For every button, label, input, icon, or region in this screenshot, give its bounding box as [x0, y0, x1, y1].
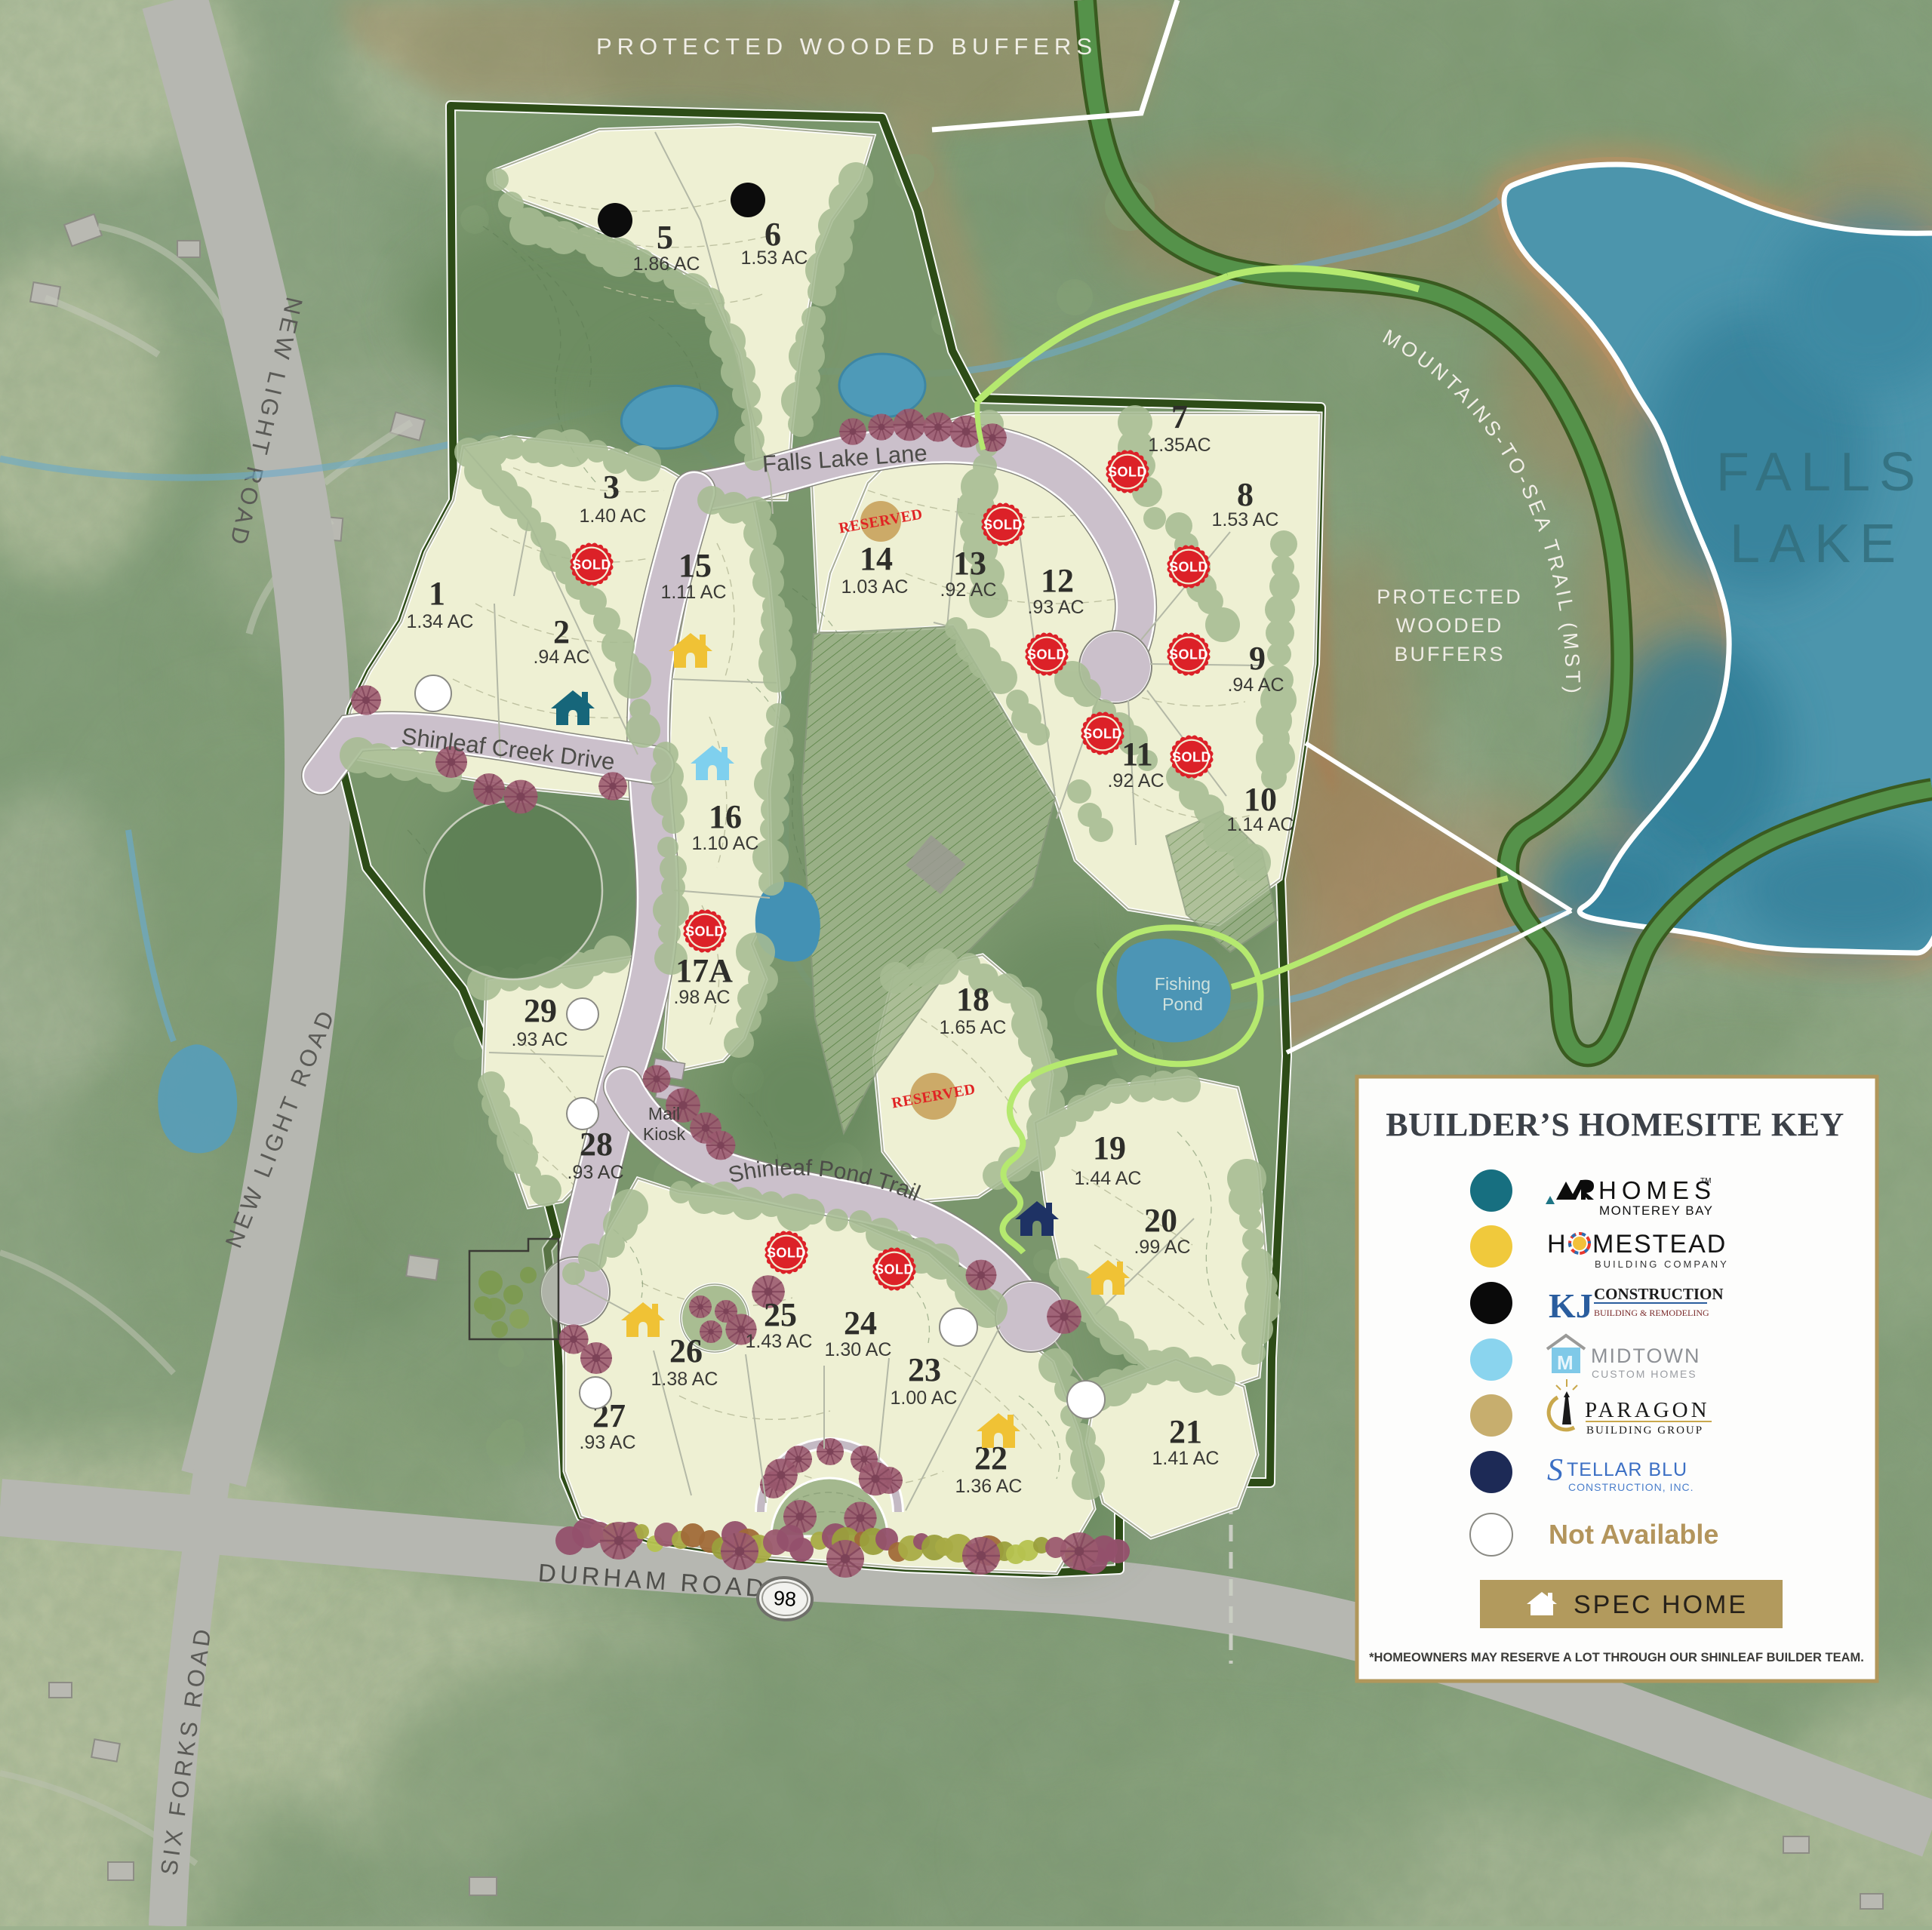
svg-text:PROTECTED WOODED BUFFERS: PROTECTED WOODED BUFFERS: [596, 33, 1097, 60]
svg-text:FALLS: FALLS: [1716, 442, 1924, 502]
svg-text:BUILDING & REMODELING: BUILDING & REMODELING: [1594, 1308, 1709, 1318]
svg-text:MESTEAD: MESTEAD: [1592, 1230, 1727, 1258]
svg-text:Fishing: Fishing: [1155, 974, 1211, 994]
svg-text:29: 29: [524, 992, 557, 1029]
svg-text:PARAGON: PARAGON: [1585, 1398, 1710, 1422]
svg-text:.93 AC: .93 AC: [511, 1029, 568, 1050]
svg-text:TM: TM: [1700, 1177, 1711, 1185]
svg-text:1.40 AC: 1.40 AC: [580, 506, 647, 527]
svg-text:.92 AC: .92 AC: [1107, 770, 1164, 791]
svg-text:1.41 AC: 1.41 AC: [1152, 1448, 1220, 1469]
svg-text:23: 23: [908, 1351, 941, 1388]
svg-text:H: H: [1547, 1230, 1567, 1258]
svg-text:1.14 AC: 1.14 AC: [1227, 814, 1294, 835]
svg-text:LAKE: LAKE: [1730, 514, 1905, 574]
svg-text:HOMES: HOMES: [1598, 1176, 1716, 1204]
svg-text:.99 AC: .99 AC: [1134, 1237, 1190, 1258]
svg-text:S: S: [1547, 1453, 1563, 1488]
svg-text:M: M: [1557, 1351, 1574, 1374]
svg-text:1.86 AC: 1.86 AC: [633, 254, 700, 275]
svg-text:8: 8: [1237, 476, 1254, 513]
svg-text:.93 AC: .93 AC: [1027, 597, 1084, 618]
svg-text:BUILDING COMPANY: BUILDING COMPANY: [1595, 1258, 1729, 1270]
svg-text:9: 9: [1249, 640, 1266, 677]
svg-text:12: 12: [1041, 562, 1074, 599]
svg-text:20: 20: [1144, 1202, 1177, 1239]
svg-text:18: 18: [956, 981, 989, 1018]
svg-text:25: 25: [764, 1296, 797, 1333]
svg-text:SPEC HOME: SPEC HOME: [1574, 1590, 1748, 1619]
svg-text:BUILDER’S HOMESITE KEY: BUILDER’S HOMESITE KEY: [1386, 1106, 1844, 1143]
svg-text:Pond: Pond: [1162, 994, 1203, 1014]
svg-text:1.53 AC: 1.53 AC: [741, 247, 808, 269]
svg-text:.93 AC: .93 AC: [567, 1162, 623, 1183]
svg-text:19: 19: [1093, 1129, 1126, 1166]
svg-text:PROTECTED: PROTECTED: [1377, 585, 1523, 608]
svg-text:1.43 AC: 1.43 AC: [746, 1331, 813, 1352]
svg-text:1.00 AC: 1.00 AC: [891, 1388, 958, 1409]
svg-text:10: 10: [1244, 781, 1277, 818]
svg-text:7: 7: [1171, 398, 1188, 435]
svg-text:MIDTOWN: MIDTOWN: [1591, 1345, 1700, 1367]
svg-text:1.10 AC: 1.10 AC: [692, 833, 759, 854]
svg-text:MONTEREY BAY: MONTEREY BAY: [1599, 1203, 1714, 1218]
svg-text:1.35AC: 1.35AC: [1148, 435, 1211, 456]
svg-text:.98 AC: .98 AC: [673, 987, 730, 1008]
svg-text:16: 16: [709, 798, 742, 835]
svg-text:1.03 AC: 1.03 AC: [841, 576, 909, 598]
svg-text:98: 98: [773, 1587, 797, 1611]
svg-text:14: 14: [860, 540, 893, 577]
svg-text:5: 5: [657, 219, 673, 256]
svg-text:.94 AC: .94 AC: [1227, 675, 1284, 696]
svg-text:17A: 17A: [675, 952, 733, 989]
svg-text:21: 21: [1169, 1413, 1202, 1450]
svg-text:TELLAR BLU: TELLAR BLU: [1567, 1459, 1687, 1480]
svg-text:CONSTRUCTION: CONSTRUCTION: [1594, 1285, 1724, 1303]
svg-text:13: 13: [953, 545, 986, 582]
svg-text:*HOMEOWNERS MAY RESERVE A LOT: *HOMEOWNERS MAY RESERVE A LOT THROUGH OU…: [1369, 1651, 1864, 1664]
svg-text:1: 1: [429, 575, 445, 612]
svg-text:Mail: Mail: [648, 1104, 680, 1123]
svg-text:24: 24: [844, 1305, 877, 1341]
svg-text:KJ: KJ: [1549, 1286, 1593, 1325]
svg-text:28: 28: [580, 1126, 613, 1163]
svg-text:1.44 AC: 1.44 AC: [1075, 1168, 1142, 1189]
svg-text:CONSTRUCTION, INC.: CONSTRUCTION, INC.: [1568, 1481, 1694, 1493]
svg-text:Kiosk: Kiosk: [643, 1124, 686, 1144]
svg-text:1.34 AC: 1.34 AC: [407, 611, 474, 632]
svg-text:11: 11: [1121, 736, 1153, 773]
svg-text:WOODED: WOODED: [1396, 614, 1504, 637]
svg-text:2: 2: [553, 613, 570, 650]
svg-text:1.53 AC: 1.53 AC: [1212, 509, 1279, 530]
svg-text:BUILDING GROUP: BUILDING GROUP: [1586, 1424, 1703, 1437]
svg-text:.94 AC: .94 AC: [533, 647, 589, 668]
svg-text:.93 AC: .93 AC: [579, 1432, 635, 1453]
svg-text:BUFFERS: BUFFERS: [1394, 643, 1505, 665]
svg-text:26: 26: [669, 1332, 703, 1369]
svg-text:1.65 AC: 1.65 AC: [940, 1017, 1007, 1038]
svg-text:1.36 AC: 1.36 AC: [955, 1476, 1023, 1497]
svg-text:.92 AC: .92 AC: [940, 579, 996, 601]
svg-text:3: 3: [603, 469, 620, 506]
svg-text:Not Available: Not Available: [1549, 1519, 1718, 1550]
svg-text:1.11 AC: 1.11 AC: [660, 582, 726, 603]
svg-text:1.38 AC: 1.38 AC: [651, 1369, 718, 1390]
svg-text:CUSTOM HOMES: CUSTOM HOMES: [1592, 1368, 1697, 1380]
svg-text:1.30 AC: 1.30 AC: [825, 1339, 892, 1360]
svg-text:15: 15: [678, 547, 712, 584]
